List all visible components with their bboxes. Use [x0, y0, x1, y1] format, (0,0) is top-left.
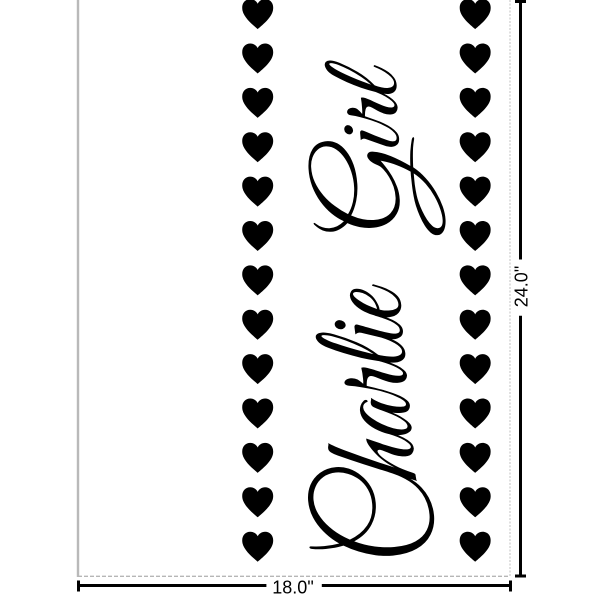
- svg-text:24.0": 24.0": [512, 266, 532, 307]
- svg-text:18.0": 18.0": [272, 578, 313, 598]
